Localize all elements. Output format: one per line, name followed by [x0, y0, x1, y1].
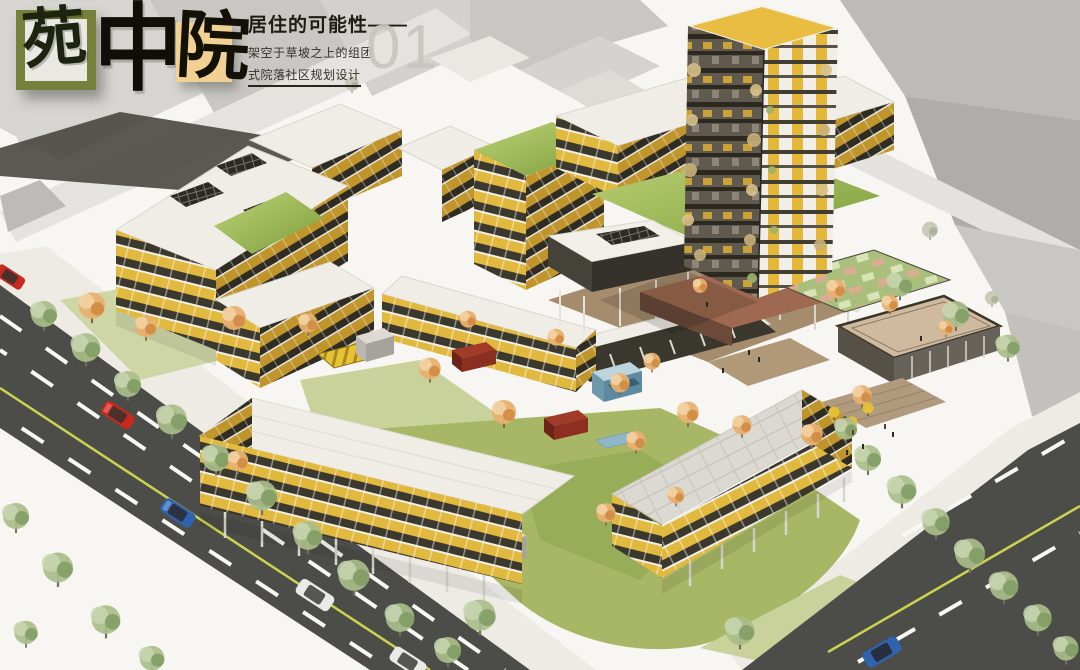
- logo-char-yuan1: 苑: [19, 3, 102, 74]
- logo-char-zhong: 中: [94, 0, 182, 98]
- project-subtitle-line2: 式院落社区规划设计: [248, 66, 361, 87]
- residential-tower: [682, 6, 838, 298]
- architectural-rendering-board: 苑 中 院 居住的可能性—— 架空于草坡之上的组团 式院落社区规划设计 01: [0, 0, 1080, 670]
- page-number: 01: [366, 12, 439, 83]
- tan-roof-pavilion: [838, 296, 1000, 384]
- title-block: 苑 中 院 居住的可能性—— 架空于草坡之上的组团 式院落社区规划设计 01: [0, 0, 470, 130]
